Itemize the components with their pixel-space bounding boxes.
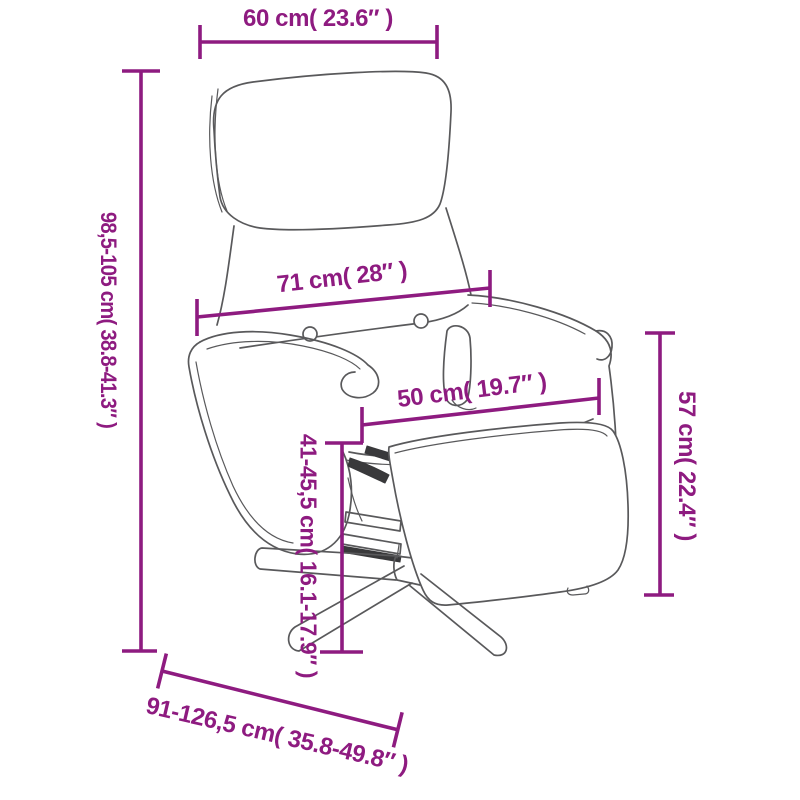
seat-height-dimension bbox=[320, 443, 363, 652]
seat-height-label: 41-45,5 cm( 16.1-17.9″ ) bbox=[295, 434, 322, 678]
headrest-width-label: 60 cm( 23.6″ ) bbox=[243, 5, 393, 33]
footrest-height-label: 57 cm( 22.4″ ) bbox=[672, 391, 700, 541]
recliner-chair-drawing bbox=[188, 71, 628, 655]
total-height-dimension bbox=[122, 71, 160, 651]
total-height-label: 98,5-105 cm( 38.8-41.3″ ) bbox=[95, 212, 121, 428]
footrest-height-dimension bbox=[644, 333, 675, 595]
product-dimension-diagram: 60 cm( 23.6″ ) 98,5-105 cm( 38.8-41.3″ )… bbox=[0, 0, 800, 800]
